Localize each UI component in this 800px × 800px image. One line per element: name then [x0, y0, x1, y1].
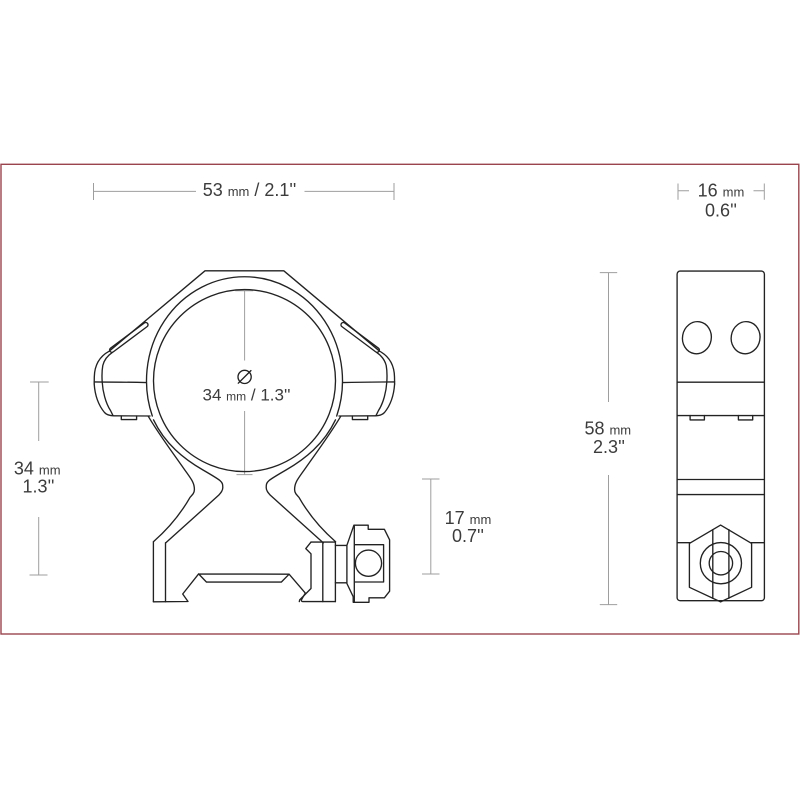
svg-text:0.7'': 0.7'' [452, 526, 484, 546]
svg-text:2.3'': 2.3'' [593, 437, 625, 457]
svg-text:1.3'': 1.3'' [23, 477, 55, 497]
svg-text:0.6'': 0.6'' [705, 200, 737, 220]
svg-text:53 mm / 2.1'': 53 mm / 2.1'' [203, 180, 297, 200]
svg-text:34 mm / 1.3'': 34 mm / 1.3'' [203, 385, 291, 404]
